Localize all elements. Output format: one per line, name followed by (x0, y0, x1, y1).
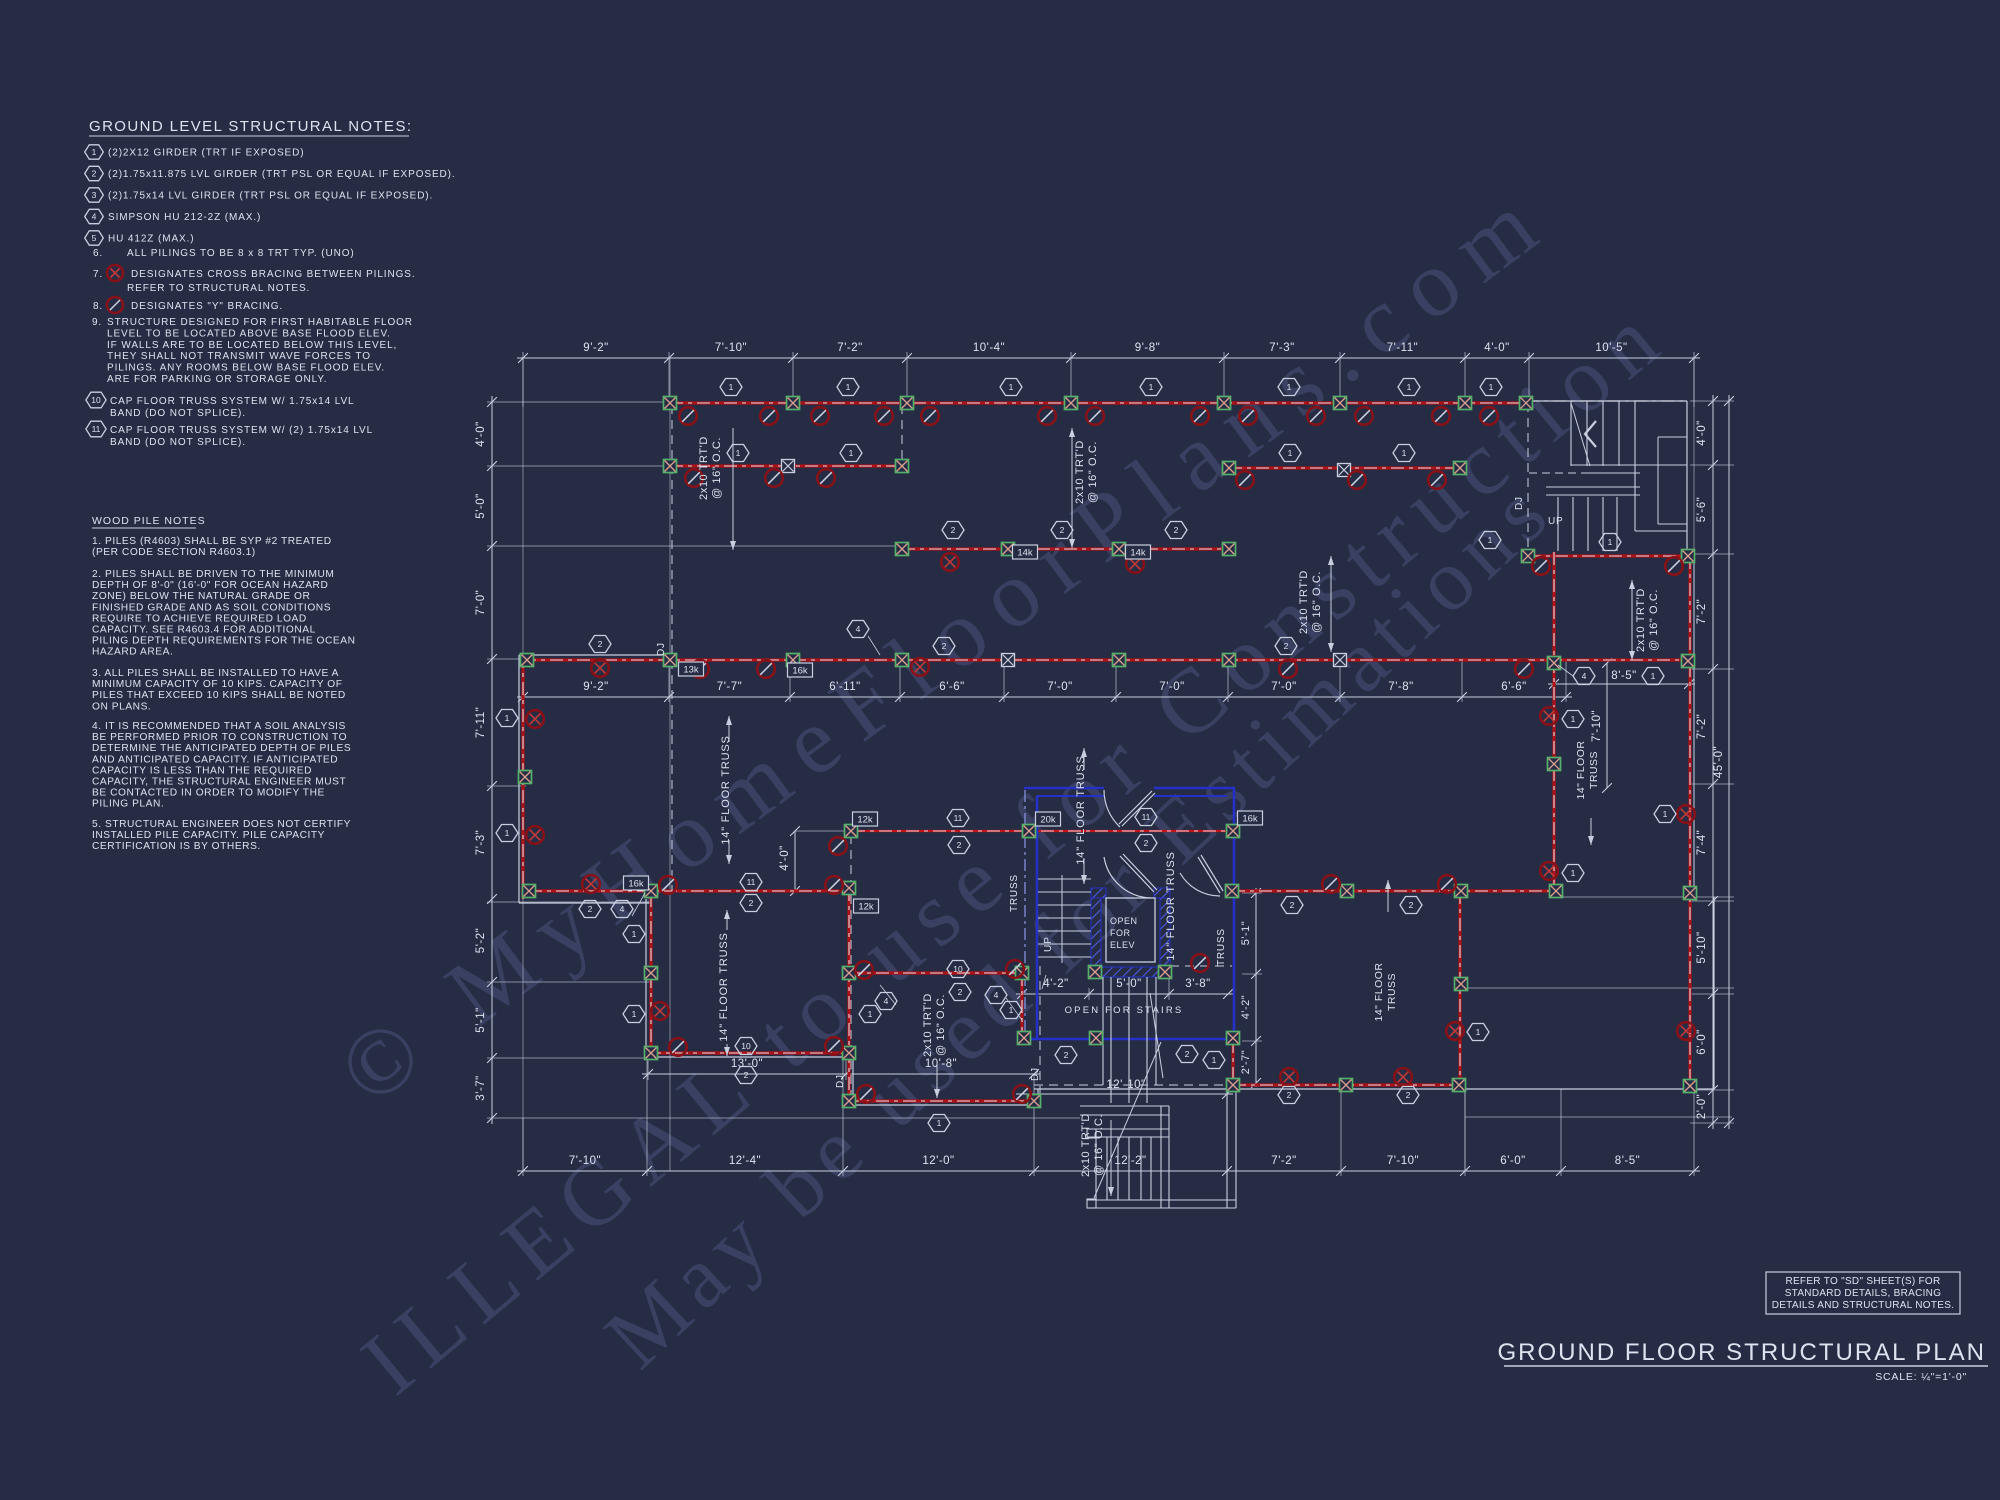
svg-text:DESIGNATES CROSS BRACING BETWE: DESIGNATES CROSS BRACING BETWEEN PILINGS… (131, 269, 416, 280)
svg-text:7'-3": 7'-3" (475, 830, 487, 855)
svg-text:SCALE: ¼"=1'-0": SCALE: ¼"=1'-0" (1875, 1371, 1967, 1383)
svg-text:1: 1 (1476, 1027, 1481, 1037)
svg-text:PILINGS. ANY ROOMS BELOW BASE: PILINGS. ANY ROOMS BELOW BASE FLOOD ELEV… (107, 363, 385, 374)
svg-text:OPEN FOR STAIRS: OPEN FOR STAIRS (1065, 1005, 1184, 1016)
svg-text:DESIGNATES "Y" BRACING.: DESIGNATES "Y" BRACING. (131, 301, 283, 312)
svg-text:REQUIRE TO ACHIEVE REQUIRED LO: REQUIRE TO ACHIEVE REQUIRED LOAD (92, 613, 307, 624)
svg-text:TRUSS: TRUSS (1588, 751, 1600, 789)
svg-text:ARE FOR PARKING OR STORAGE ONL: ARE FOR PARKING OR STORAGE ONLY. (107, 374, 327, 385)
svg-text:14" FLOOR TRUSS: 14" FLOOR TRUSS (718, 932, 730, 1041)
svg-text:7'-4": 7'-4" (1696, 830, 1708, 855)
svg-text:9'-8": 9'-8" (1135, 342, 1160, 354)
svg-text:1: 1 (849, 448, 854, 458)
svg-text:7'-3": 7'-3" (1269, 342, 1294, 354)
svg-text:2: 2 (1287, 1090, 1292, 1100)
svg-text:2: 2 (1174, 525, 1179, 535)
svg-text:14" FLOOR: 14" FLOOR (1575, 741, 1587, 800)
svg-text:@ 16" O.C.: @ 16" O.C. (1087, 441, 1099, 503)
svg-text:(2)1.75x11.875 LVL GIRDER (TRT: (2)1.75x11.875 LVL GIRDER (TRT PSL OR EQ… (108, 169, 456, 180)
svg-text:10'-5": 10'-5" (1595, 342, 1627, 354)
svg-text:5'-10": 5'-10" (1696, 931, 1708, 963)
svg-text:7'-2": 7'-2" (1271, 1155, 1296, 1167)
svg-text:12'-0": 12'-0" (922, 1155, 954, 1167)
svg-text:INSTALLED PILE CAPACITY. PILE: INSTALLED PILE CAPACITY. PILE CAPACITY (92, 830, 325, 841)
svg-text:2: 2 (1144, 838, 1149, 848)
svg-text:7'-10": 7'-10" (1591, 710, 1603, 742)
svg-text:@ 16" O.C.: @ 16" O.C. (1648, 589, 1660, 651)
svg-text:12'-2": 12'-2" (1114, 1155, 1146, 1167)
svg-text:4: 4 (884, 996, 889, 1006)
svg-text:1: 1 (846, 382, 851, 392)
svg-text:11: 11 (747, 877, 756, 887)
svg-text:7'-0": 7'-0" (1047, 681, 1072, 693)
svg-text:7'-0": 7'-0" (1159, 681, 1184, 693)
svg-text:6'-6": 6'-6" (1501, 681, 1526, 693)
svg-text:8'-5": 8'-5" (1611, 670, 1636, 682)
svg-text:SIMPSON HU 212-2Z (MAX.): SIMPSON HU 212-2Z (MAX.) (108, 212, 261, 223)
svg-text:ON PLANS.: ON PLANS. (92, 701, 151, 712)
svg-text:2: 2 (1290, 900, 1295, 910)
svg-text:DETAILS AND STRUCTURAL NOTES.: DETAILS AND STRUCTURAL NOTES. (1772, 1300, 1955, 1311)
svg-text:7'-2": 7'-2" (1696, 599, 1708, 624)
svg-text:7.: 7. (93, 269, 103, 280)
svg-text:12k: 12k (857, 815, 873, 826)
svg-text:11: 11 (1142, 812, 1151, 822)
svg-text:BE PERFORMED PRIOR TO CONSTRUC: BE PERFORMED PRIOR TO CONSTRUCTION TO (92, 732, 347, 743)
svg-text:14" FLOOR TRUSS: 14" FLOOR TRUSS (720, 735, 732, 844)
svg-text:13'-0": 13'-0" (731, 1058, 763, 1070)
svg-text:ALL PILINGS TO BE 8 x 8 TRT TY: ALL PILINGS TO BE 8 x 8 TRT TYP. (UNO) (127, 248, 355, 259)
svg-text:10: 10 (91, 395, 101, 405)
svg-text:7'-0": 7'-0" (475, 590, 487, 615)
svg-text:CAP FLOOR TRUSS SYSTEM W/ 1.75: CAP FLOOR TRUSS SYSTEM W/ 1.75x14 LVL (110, 396, 354, 407)
svg-text:2: 2 (942, 641, 947, 651)
svg-text:2: 2 (749, 898, 754, 908)
svg-text:8.: 8. (93, 301, 103, 312)
svg-text:HAZARD AREA.: HAZARD AREA. (92, 647, 173, 658)
svg-text:2: 2 (1284, 641, 1289, 651)
svg-text:10: 10 (953, 964, 963, 974)
svg-text:1: 1 (505, 828, 510, 838)
svg-text:DEPTH OF 8'-0" (16'-0" FOR OCE: DEPTH OF 8'-0" (16'-0" FOR OCEAN HAZARD (92, 580, 328, 591)
svg-text:1: 1 (505, 713, 510, 723)
svg-text:6'-0": 6'-0" (1500, 1155, 1525, 1167)
svg-text:4: 4 (856, 624, 861, 634)
svg-text:CAPACITY, THE STRUCTURAL ENGIN: CAPACITY, THE STRUCTURAL ENGINEER MUST (92, 777, 346, 788)
svg-text:PILING DEPTH REQUIREMENTS FOR: PILING DEPTH REQUIREMENTS FOR THE OCEAN (92, 636, 356, 647)
svg-text:(2)1.75x14 LVL GIRDER (TRT PSL: (2)1.75x14 LVL GIRDER (TRT PSL OR EQUAL … (108, 191, 433, 202)
svg-text:(PER CODE SECTION R4603.1): (PER CODE SECTION R4603.1) (92, 547, 256, 558)
svg-text:1: 1 (937, 1118, 942, 1128)
svg-text:16k: 16k (1242, 814, 1258, 825)
svg-text:4'-2": 4'-2" (1240, 995, 1252, 1019)
svg-text:7'-2": 7'-2" (837, 342, 862, 354)
svg-text:1: 1 (1009, 382, 1014, 392)
svg-text:7'-11": 7'-11" (475, 707, 487, 738)
svg-text:DJ: DJ (656, 642, 667, 656)
svg-text:PILES THAT EXCEED 10 KIPS SHAL: PILES THAT EXCEED 10 KIPS SHALL BE NOTED (92, 690, 346, 701)
svg-text:5'-0": 5'-0" (475, 493, 487, 518)
svg-text:AND ANTICIPATED CAPACITY. IF A: AND ANTICIPATED CAPACITY. IF ANTICIPATED (92, 754, 338, 765)
svg-text:7'-10": 7'-10" (715, 342, 747, 354)
svg-text:4: 4 (994, 990, 999, 1000)
svg-text:4'-0": 4'-0" (1484, 342, 1509, 354)
svg-text:14" FLOOR: 14" FLOOR (1373, 963, 1385, 1022)
svg-text:2: 2 (1409, 900, 1414, 910)
svg-text:CAPACITY. SEE R4603.4 FOR ADDI: CAPACITY. SEE R4603.4 FOR ADDITIONAL (92, 625, 316, 636)
svg-text:10: 10 (741, 1041, 751, 1051)
svg-text:2: 2 (958, 987, 963, 997)
svg-text:BAND (DO NOT SPLICE).: BAND (DO NOT SPLICE). (110, 408, 246, 419)
svg-text:STRUCTURE DESIGNED FOR FIRST H: STRUCTURE DESIGNED FOR FIRST HABITABLE F… (107, 317, 413, 328)
svg-text:@ 16" O.C.: @ 16" O.C. (1093, 1114, 1105, 1176)
svg-text:1: 1 (1402, 448, 1407, 458)
svg-text:5'-1": 5'-1" (1240, 921, 1252, 945)
svg-text:REFER TO "SD" SHEET(S) FOR: REFER TO "SD" SHEET(S) FOR (1785, 1276, 1940, 1287)
svg-text:4: 4 (92, 212, 97, 222)
svg-text:1: 1 (1149, 382, 1154, 392)
svg-text:11: 11 (954, 813, 963, 823)
svg-text:FOR: FOR (1110, 928, 1131, 938)
svg-text:TRUSS: TRUSS (1216, 928, 1227, 966)
svg-text:STANDARD DETAILS, BRACING: STANDARD DETAILS, BRACING (1785, 1288, 1942, 1299)
svg-text:2'-0": 2'-0" (1696, 1094, 1708, 1119)
svg-text:2: 2 (92, 169, 97, 179)
svg-text:2: 2 (1406, 1090, 1411, 1100)
svg-text:2x10 TRT'D: 2x10 TRT'D (1080, 1113, 1092, 1177)
svg-text:PILING PLAN.: PILING PLAN. (92, 799, 164, 810)
svg-text:5: 5 (92, 233, 97, 243)
svg-text:IF WALLS ARE TO BE LOCATED BEL: IF WALLS ARE TO BE LOCATED BELOW THIS LE… (107, 340, 397, 351)
svg-text:TRUSS: TRUSS (1386, 973, 1398, 1011)
svg-text:7'-7": 7'-7" (717, 681, 742, 693)
svg-text:2: 2 (957, 840, 962, 850)
svg-text:14" FLOOR TRUSS: 14" FLOOR TRUSS (1075, 755, 1087, 864)
svg-text:1: 1 (729, 382, 734, 392)
svg-text:2x10 TRT'D: 2x10 TRT'D (1298, 570, 1310, 634)
svg-text:14" FLOOR TRUSS: 14" FLOOR TRUSS (1165, 851, 1177, 960)
svg-text:1: 1 (1651, 671, 1656, 681)
svg-text:13k: 13k (683, 665, 699, 676)
svg-text:1: 1 (736, 448, 741, 458)
svg-text:10'-4": 10'-4" (973, 342, 1005, 354)
svg-text:@ 16" O.C.: @ 16" O.C. (1311, 571, 1323, 633)
svg-text:@ 16" O.C.: @ 16" O.C. (935, 994, 947, 1056)
svg-text:2: 2 (951, 525, 956, 535)
svg-text:4: 4 (1582, 671, 1587, 681)
svg-text:14k: 14k (1130, 548, 1146, 559)
svg-text:DJ: DJ (835, 1074, 846, 1088)
svg-text:2x10 TRT'D: 2x10 TRT'D (1074, 440, 1086, 504)
svg-text:5'-2": 5'-2" (475, 928, 487, 953)
svg-text:3. ALL PILES SHALL BE INSTALLE: 3. ALL PILES SHALL BE INSTALLED TO HAVE … (92, 668, 339, 679)
svg-text:5'-1": 5'-1" (475, 1007, 487, 1032)
svg-text:9.: 9. (92, 317, 102, 328)
svg-text:4'-0": 4'-0" (1696, 420, 1708, 445)
svg-text:2: 2 (588, 904, 593, 914)
svg-text:1: 1 (1489, 382, 1494, 392)
svg-text:DETERMINE THE ANTICIPATED DEPT: DETERMINE THE ANTICIPATED DEPTH OF PILES (92, 743, 351, 754)
svg-text:CERTIFICATION IS BY OTHERS.: CERTIFICATION IS BY OTHERS. (92, 841, 261, 852)
svg-text:8'-5": 8'-5" (1615, 1155, 1640, 1167)
svg-text:1: 1 (1287, 382, 1292, 392)
svg-text:4'-0": 4'-0" (475, 421, 487, 446)
svg-text:2x10 TRT'D: 2x10 TRT'D (698, 436, 710, 500)
svg-text:UP: UP (1548, 516, 1564, 527)
svg-text:1: 1 (1663, 809, 1668, 819)
svg-text:2: 2 (1060, 525, 1065, 535)
svg-text:2'-7": 2'-7" (1240, 1050, 1252, 1074)
svg-text:DJ: DJ (1030, 1067, 1041, 1081)
svg-text:3: 3 (92, 190, 97, 200)
svg-text:1: 1 (1571, 714, 1576, 724)
svg-text:7'-10": 7'-10" (569, 1155, 601, 1167)
svg-text:2. PILES SHALL BE DRIVEN TO TH: 2. PILES SHALL BE DRIVEN TO THE MINIMUM (92, 569, 334, 580)
svg-text:6'-0": 6'-0" (1696, 1029, 1708, 1054)
svg-text:16k: 16k (792, 666, 808, 677)
svg-text:5'-6": 5'-6" (1696, 497, 1708, 522)
svg-text:4'-2": 4'-2" (1043, 978, 1068, 990)
svg-text:2: 2 (1185, 1049, 1190, 1059)
svg-text:11: 11 (92, 424, 101, 434)
svg-text:14k: 14k (1017, 548, 1033, 559)
svg-text:4: 4 (620, 904, 625, 914)
svg-text:MINIMUM CAPACITY OF 10 KIPS. C: MINIMUM CAPACITY OF 10 KIPS. CAPACITY OF (92, 679, 343, 690)
svg-text:16k: 16k (628, 879, 644, 890)
svg-text:BAND (DO NOT SPLICE).: BAND (DO NOT SPLICE). (110, 437, 246, 448)
svg-text:ZONE) BELOW THE NATURAL GRADE: ZONE) BELOW THE NATURAL GRADE OR (92, 591, 310, 602)
svg-text:1. PILES (R4603) SHALL BE SYP: 1. PILES (R4603) SHALL BE SYP #2 TREATED (92, 536, 332, 547)
svg-text:1: 1 (92, 147, 97, 157)
svg-text:2: 2 (744, 1070, 749, 1080)
svg-text:9'-2": 9'-2" (583, 342, 608, 354)
svg-text:1: 1 (1608, 537, 1613, 547)
svg-text:5. STRUCTURAL ENGINEER DOES NO: 5. STRUCTURAL ENGINEER DOES NOT CERTIFY (92, 819, 351, 830)
svg-text:REFER TO STRUCTURAL NOTES.: REFER TO STRUCTURAL NOTES. (127, 283, 310, 294)
svg-text:OPEN: OPEN (1110, 916, 1138, 926)
svg-text:1: 1 (1009, 1005, 1014, 1015)
svg-text:6'-6": 6'-6" (939, 681, 964, 693)
svg-text:BE CONTACTED IN ORDER TO MODIF: BE CONTACTED IN ORDER TO MODIFY THE (92, 788, 325, 799)
svg-text:1: 1 (868, 1009, 873, 1019)
svg-text:10'-8": 10'-8" (925, 1058, 957, 1070)
svg-text:7'-11": 7'-11" (1387, 342, 1418, 354)
svg-text:4'-0": 4'-0" (779, 845, 791, 870)
svg-text:1: 1 (1288, 448, 1293, 458)
svg-text:3'-8": 3'-8" (1185, 978, 1210, 990)
svg-text:2x10 TRT'D: 2x10 TRT'D (1635, 588, 1647, 652)
svg-text:12'-4": 12'-4" (729, 1155, 761, 1167)
svg-text:6'-11": 6'-11" (829, 681, 860, 693)
svg-text:6.: 6. (93, 248, 103, 259)
svg-text:45'-0": 45'-0" (1713, 746, 1725, 778)
svg-text:GROUND LEVEL STRUCTURAL NOTES:: GROUND LEVEL STRUCTURAL NOTES: (89, 118, 412, 135)
svg-text:7'-8": 7'-8" (1388, 681, 1413, 693)
svg-text:LEVEL TO BE LOCATED ABOVE BASE: LEVEL TO BE LOCATED ABOVE BASE FLOOD ELE… (107, 328, 391, 339)
svg-text:CAP FLOOR TRUSS SYSTEM W/ (2): CAP FLOOR TRUSS SYSTEM W/ (2) 1.75x14 LV… (110, 425, 373, 436)
svg-text:2: 2 (1064, 1050, 1069, 1060)
svg-text:FINISHED GRADE AND AS SOIL CON: FINISHED GRADE AND AS SOIL CONDITIONS (92, 602, 331, 613)
svg-text:1: 1 (1488, 535, 1493, 545)
svg-text:1: 1 (1571, 868, 1576, 878)
svg-text:DJ: DJ (1514, 496, 1525, 510)
svg-text:@ 16" O.C.: @ 16" O.C. (711, 437, 723, 499)
svg-text:1: 1 (1212, 1055, 1217, 1065)
svg-text:ELEV: ELEV (1110, 940, 1135, 950)
svg-text:1: 1 (632, 1009, 637, 1019)
svg-text:UP: UP (1043, 936, 1054, 952)
svg-text:CAPACITY IS LESS THAN THE REQU: CAPACITY IS LESS THAN THE REQUIRED (92, 765, 312, 776)
svg-text:20k: 20k (1040, 815, 1056, 826)
svg-text:(2)2X12 GIRDER (TRT IF EXPOSED: (2)2X12 GIRDER (TRT IF EXPOSED) (108, 148, 304, 159)
svg-text:2x10 TRT'D: 2x10 TRT'D (922, 993, 934, 1057)
svg-text:WOOD PILE NOTES: WOOD PILE NOTES (92, 515, 206, 527)
svg-text:GROUND FLOOR STRUCTURAL PLAN: GROUND FLOOR STRUCTURAL PLAN (1498, 1339, 1987, 1366)
svg-text:7'-10": 7'-10" (1387, 1155, 1419, 1167)
svg-text:1: 1 (1407, 382, 1412, 392)
svg-text:2: 2 (598, 639, 603, 649)
svg-text:TRUSS: TRUSS (1009, 874, 1020, 912)
svg-text:3'-7": 3'-7" (475, 1075, 487, 1100)
svg-text:1: 1 (632, 929, 637, 939)
svg-text:12k: 12k (858, 902, 874, 913)
svg-text:7'-0": 7'-0" (1271, 681, 1296, 693)
svg-text:7'-2": 7'-2" (1696, 714, 1708, 739)
svg-text:4. IT IS RECOMMENDED THAT A SO: 4. IT IS RECOMMENDED THAT A SOIL ANALYSI… (92, 721, 346, 732)
svg-text:9'-2": 9'-2" (583, 681, 608, 693)
svg-text:HU 412Z (MAX.): HU 412Z (MAX.) (108, 234, 195, 245)
svg-text:THEY SHALL NOT TRANSMIT WAVE F: THEY SHALL NOT TRANSMIT WAVE FORCES TO (107, 351, 371, 362)
